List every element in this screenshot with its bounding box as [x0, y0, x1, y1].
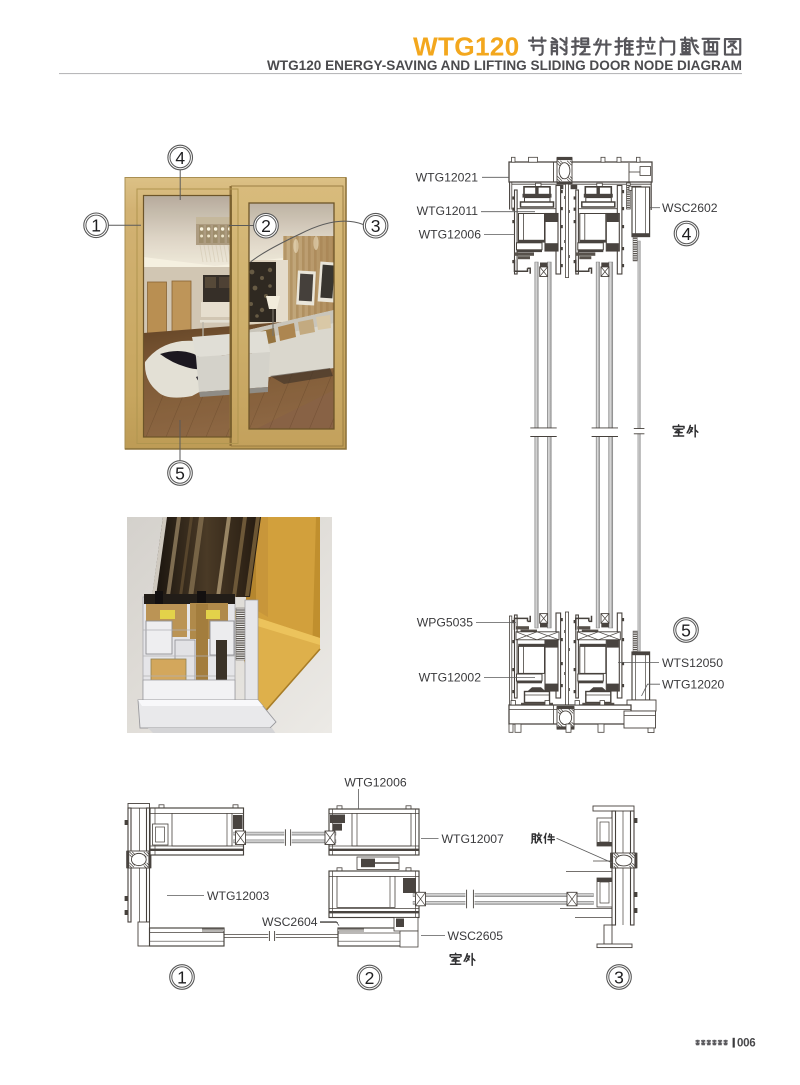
svg-text:WTG12007: WTG12007 — [442, 832, 505, 846]
svg-text:WTG12021: WTG12021 — [416, 171, 479, 185]
svg-text:3: 3 — [371, 216, 381, 236]
svg-text:3: 3 — [614, 967, 624, 987]
svg-text:006: 006 — [737, 1038, 755, 1050]
svg-text:4: 4 — [682, 224, 692, 244]
svg-text:1: 1 — [91, 216, 101, 236]
svg-text:WTG12011: WTG12011 — [417, 204, 479, 218]
svg-text:WTG12002: WTG12002 — [419, 671, 482, 685]
svg-text:WSC2604: WSC2604 — [262, 915, 318, 929]
svg-text:1: 1 — [177, 967, 187, 987]
svg-text:WPG5035: WPG5035 — [417, 616, 473, 630]
svg-text:WTG12003: WTG12003 — [207, 889, 270, 903]
svg-text:WSC2602: WSC2602 — [662, 201, 718, 215]
svg-text:WTG12006: WTG12006 — [419, 227, 482, 241]
svg-text:WTS12050: WTS12050 — [662, 656, 723, 670]
svg-text:5: 5 — [681, 620, 691, 640]
svg-text:2: 2 — [261, 216, 271, 236]
svg-text:WTG12020: WTG12020 — [662, 677, 725, 691]
svg-text:4: 4 — [175, 148, 185, 168]
svg-text:2: 2 — [365, 968, 375, 988]
svg-text:5: 5 — [175, 463, 185, 483]
svg-text:WTG12006: WTG12006 — [344, 775, 407, 789]
svg-text:WTG120: WTG120 — [413, 32, 519, 62]
svg-text:WTG120 ENERGY-SAVING AND LIFTI: WTG120 ENERGY-SAVING AND LIFTING SLIDING… — [267, 58, 742, 73]
svg-text:WSC2605: WSC2605 — [448, 929, 504, 943]
